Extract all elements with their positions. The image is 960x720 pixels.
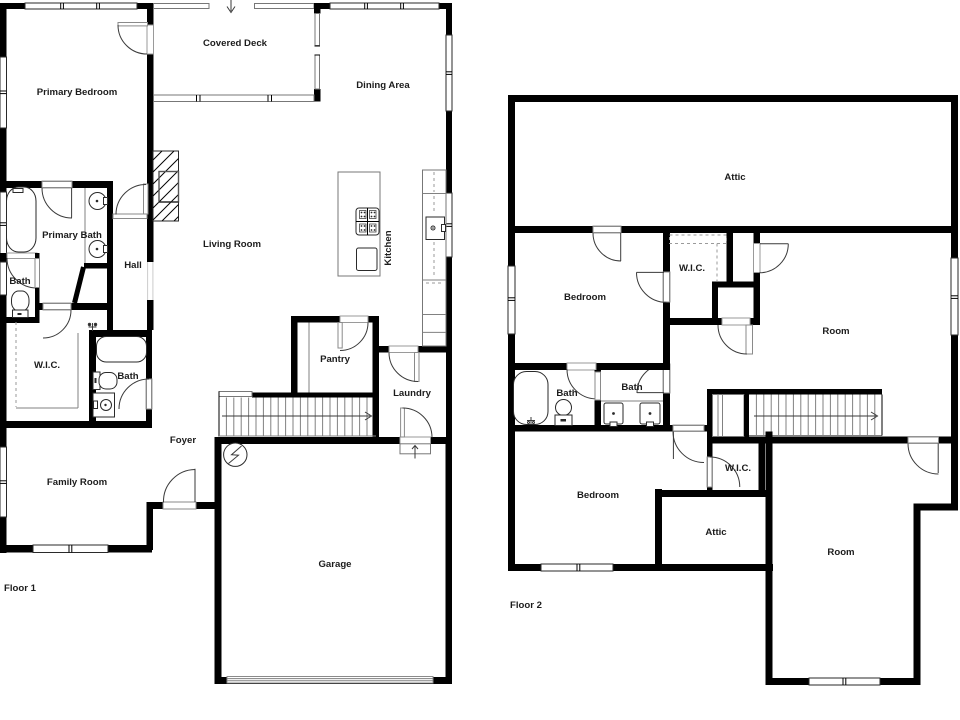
- svg-text:Bath: Bath: [9, 276, 30, 287]
- svg-text:Garage: Garage: [318, 559, 351, 570]
- svg-text:W.I.C.: W.I.C.: [725, 463, 751, 474]
- svg-text:Bath: Bath: [621, 382, 642, 393]
- svg-text:Hall: Hall: [124, 260, 142, 271]
- svg-text:Pantry: Pantry: [320, 354, 351, 365]
- svg-text:Room: Room: [822, 326, 849, 337]
- svg-text:Dining Area: Dining Area: [356, 80, 410, 91]
- svg-text:Floor 2: Floor 2: [510, 600, 542, 611]
- svg-text:Covered Deck: Covered Deck: [203, 38, 268, 49]
- svg-text:W.I.C.: W.I.C.: [34, 360, 60, 371]
- svg-text:Attic: Attic: [705, 527, 727, 538]
- svg-text:Bath: Bath: [117, 371, 138, 382]
- svg-text:Bedroom: Bedroom: [564, 292, 606, 303]
- svg-text:Floor 1: Floor 1: [4, 583, 37, 594]
- svg-text:Family Room: Family Room: [47, 477, 107, 488]
- svg-text:Primary Bath: Primary Bath: [42, 230, 102, 241]
- svg-text:Primary Bedroom: Primary Bedroom: [37, 87, 118, 98]
- svg-text:Bath: Bath: [556, 388, 577, 399]
- svg-text:Attic: Attic: [724, 172, 746, 183]
- svg-text:Living Room: Living Room: [203, 239, 261, 250]
- svg-text:Bedroom: Bedroom: [577, 490, 619, 501]
- svg-text:Laundry: Laundry: [393, 388, 432, 399]
- svg-text:Room: Room: [827, 547, 854, 558]
- svg-text:Foyer: Foyer: [170, 435, 196, 446]
- svg-text:W.I.C.: W.I.C.: [679, 263, 705, 274]
- svg-text:Kitchen: Kitchen: [383, 230, 394, 265]
